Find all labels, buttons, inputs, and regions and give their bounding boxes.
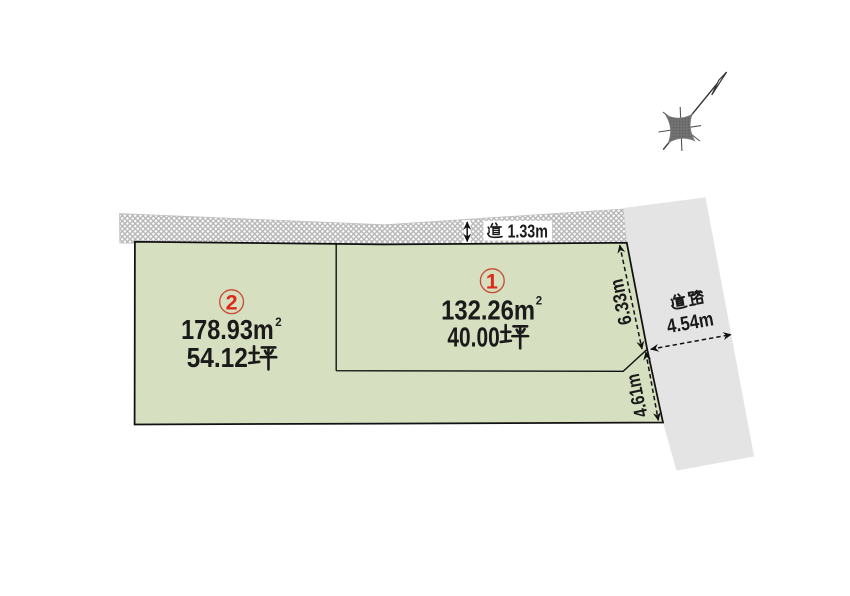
svg-text:1.33m: 1.33m bbox=[508, 220, 548, 241]
svg-text:54.12: 54.12 bbox=[187, 342, 248, 373]
svg-text:1: 1 bbox=[486, 270, 498, 294]
svg-text:2: 2 bbox=[536, 295, 542, 307]
svg-text:2: 2 bbox=[226, 291, 238, 315]
svg-text:40.00: 40.00 bbox=[447, 321, 499, 352]
svg-text:178.93m: 178.93m bbox=[181, 314, 274, 345]
svg-text:2: 2 bbox=[275, 317, 281, 329]
